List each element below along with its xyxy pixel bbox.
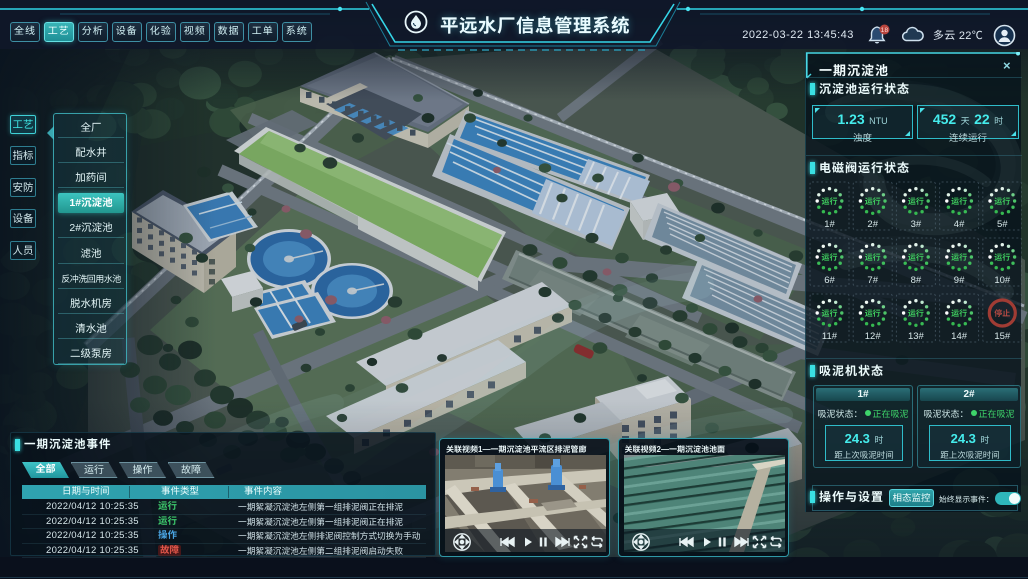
svg-text:运行: 运行: [865, 196, 881, 207]
svg-text:运行: 运行: [951, 252, 967, 263]
svg-text:2#: 2#: [867, 219, 878, 230]
svg-text:6#: 6#: [824, 275, 835, 286]
svg-text:运行: 运行: [822, 196, 838, 207]
svg-text:停止: 停止: [994, 308, 1010, 319]
svg-text:运行: 运行: [865, 252, 881, 263]
svg-text:18: 18: [880, 27, 888, 34]
svg-text:运行: 运行: [994, 252, 1010, 263]
svg-text:运行: 运行: [865, 308, 881, 319]
svg-text:4#: 4#: [954, 219, 965, 230]
svg-text:运行: 运行: [822, 252, 838, 263]
svg-text:15#: 15#: [994, 331, 1011, 342]
svg-text:13#: 13#: [908, 331, 925, 342]
svg-text:3#: 3#: [911, 219, 922, 230]
svg-text:运行: 运行: [908, 196, 924, 207]
svg-text:11#: 11#: [822, 331, 838, 342]
svg-text:10#: 10#: [994, 275, 1011, 286]
svg-text:8#: 8#: [911, 275, 922, 286]
svg-text:运行: 运行: [994, 196, 1010, 207]
svg-text:运行: 运行: [908, 252, 924, 263]
svg-text:运行: 运行: [951, 196, 967, 207]
svg-text:12#: 12#: [865, 331, 882, 342]
svg-text:1#: 1#: [824, 219, 835, 230]
svg-text:运行: 运行: [951, 308, 967, 319]
svg-text:7#: 7#: [867, 275, 878, 286]
svg-text:14#: 14#: [951, 331, 968, 342]
svg-text:运行: 运行: [822, 308, 838, 319]
svg-text:运行: 运行: [908, 308, 924, 319]
svg-text:9#: 9#: [954, 275, 965, 286]
svg-text:5#: 5#: [997, 219, 1008, 230]
